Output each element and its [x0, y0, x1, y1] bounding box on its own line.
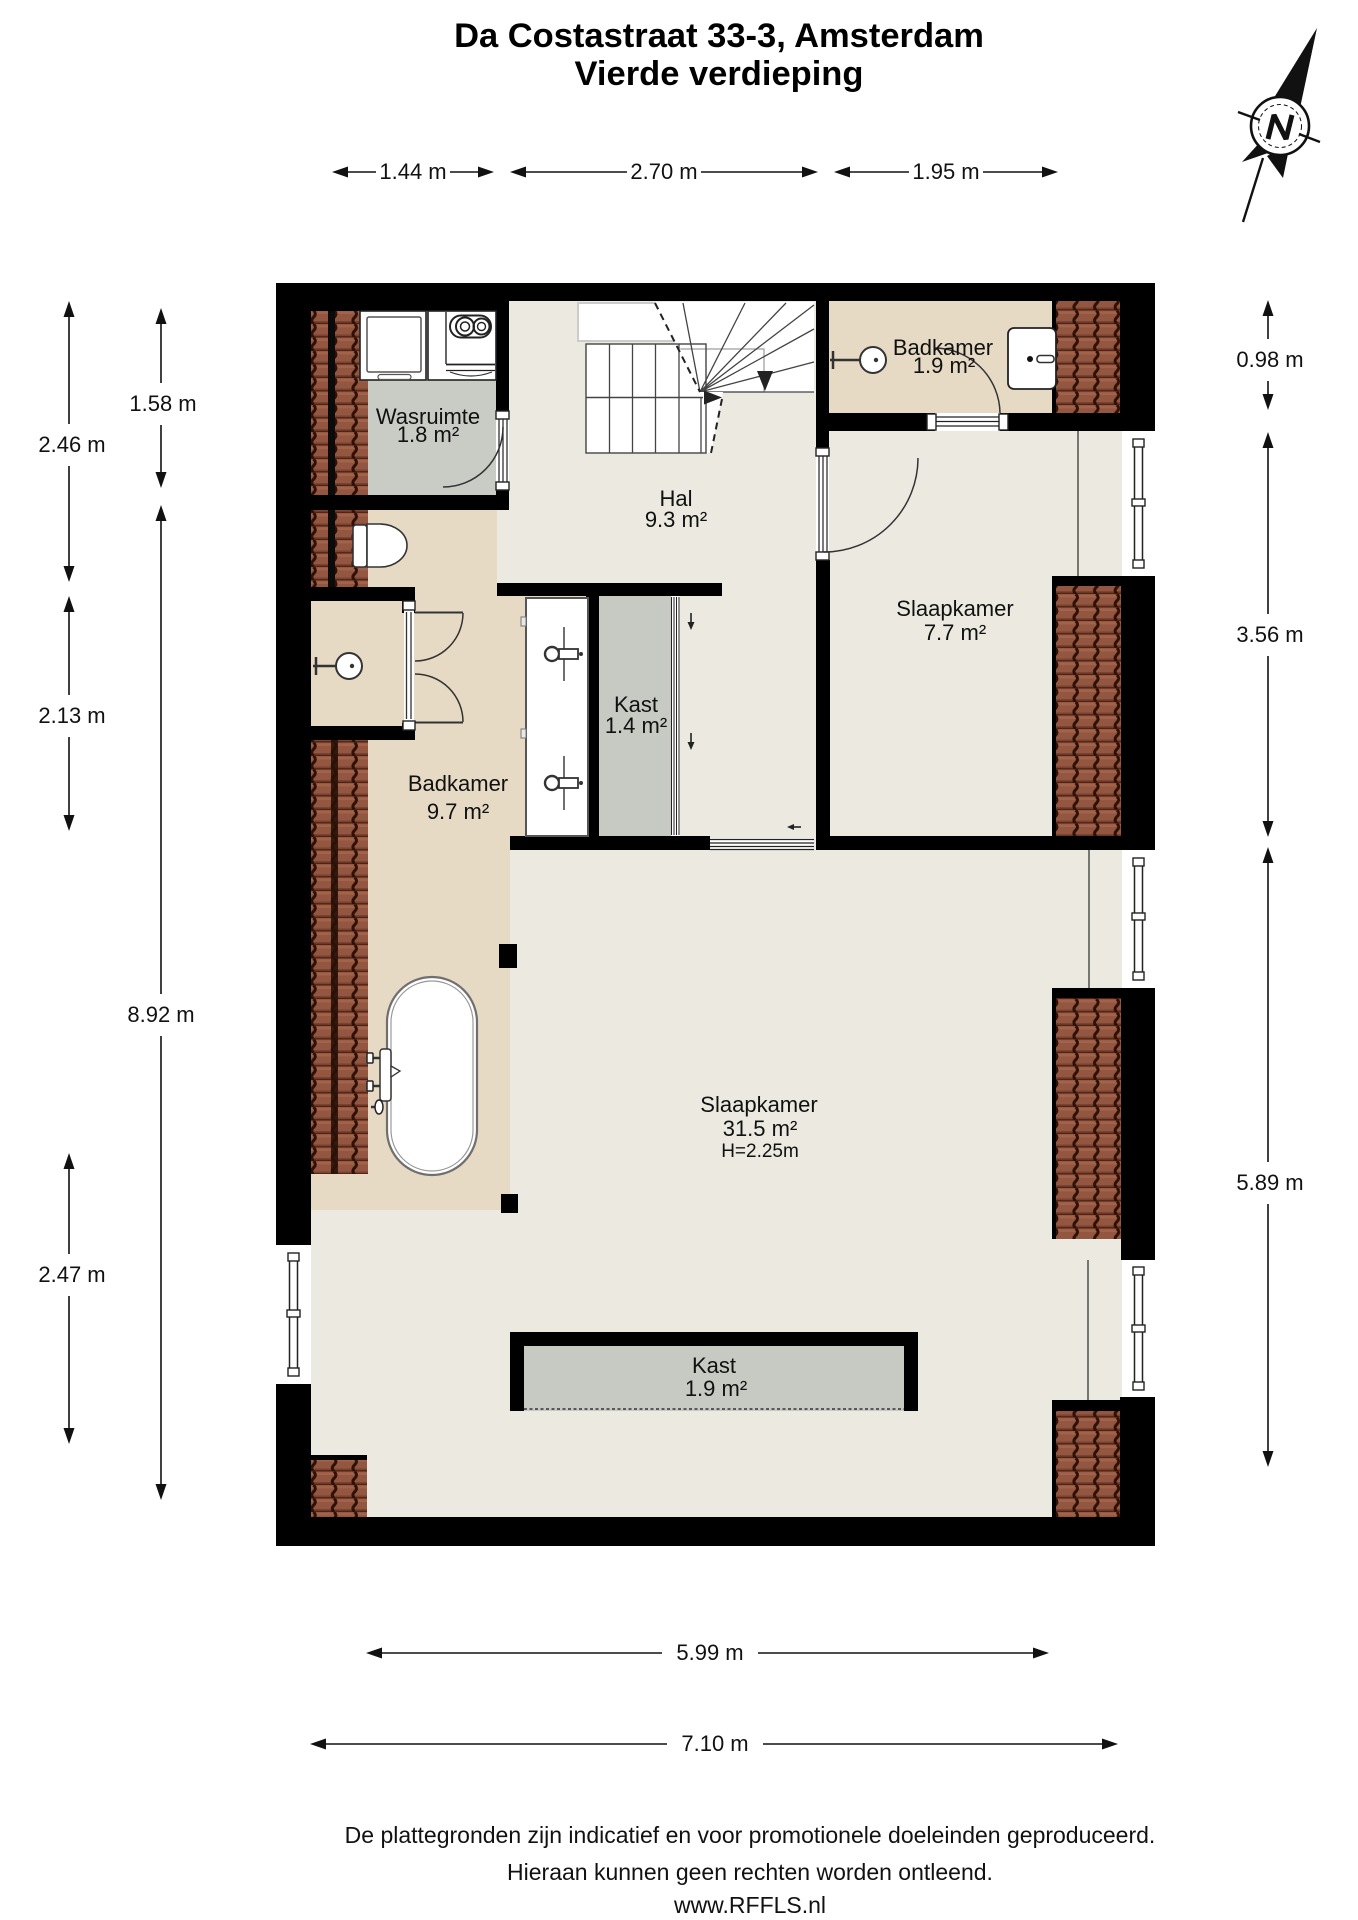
svg-text:9.7 m²: 9.7 m²	[427, 799, 489, 824]
svg-text:7.10 m: 7.10 m	[681, 1731, 748, 1756]
svg-text:2.70 m: 2.70 m	[630, 159, 697, 184]
svg-text:1.4 m²: 1.4 m²	[605, 713, 667, 738]
svg-text:8.92 m: 8.92 m	[127, 1002, 194, 1027]
svg-text:Slaapkamer: Slaapkamer	[896, 596, 1013, 621]
svg-text:Da Costastraat 33-3, Amsterdam: Da Costastraat 33-3, Amsterdam	[454, 17, 984, 55]
svg-text:31.5 m²: 31.5 m²	[723, 1116, 798, 1141]
svg-text:1.9 m²: 1.9 m²	[685, 1376, 747, 1401]
svg-text:Badkamer: Badkamer	[408, 771, 508, 796]
svg-text:0.98 m: 0.98 m	[1236, 347, 1303, 372]
svg-text:Kast: Kast	[692, 1353, 736, 1378]
svg-text:De plattegronden zijn indicati: De plattegronden zijn indicatief en voor…	[345, 1822, 1156, 1848]
svg-text:2.13 m: 2.13 m	[38, 703, 105, 728]
svg-text:2.47 m: 2.47 m	[38, 1262, 105, 1287]
svg-text:1.9 m²: 1.9 m²	[913, 353, 975, 378]
svg-text:5.99 m: 5.99 m	[676, 1640, 743, 1665]
svg-text:1.58 m: 1.58 m	[129, 391, 196, 416]
svg-text:2.46 m: 2.46 m	[38, 432, 105, 457]
svg-text:H=2.25m: H=2.25m	[721, 1141, 799, 1162]
svg-text:3.56 m: 3.56 m	[1236, 622, 1303, 647]
svg-text:9.3 m²: 9.3 m²	[645, 507, 707, 532]
svg-text:Hieraan kunnen geen rechten wo: Hieraan kunnen geen rechten worden ontle…	[507, 1859, 993, 1885]
svg-text:1.8 m²: 1.8 m²	[397, 422, 459, 447]
svg-text:Vierde verdieping: Vierde verdieping	[575, 55, 864, 93]
svg-text:www.RFFLS.nl: www.RFFLS.nl	[673, 1892, 826, 1918]
svg-text:1.95 m: 1.95 m	[912, 159, 979, 184]
svg-text:5.89 m: 5.89 m	[1236, 1170, 1303, 1195]
svg-text:1.44 m: 1.44 m	[379, 159, 446, 184]
svg-text:Slaapkamer: Slaapkamer	[700, 1092, 817, 1117]
svg-text:7.7 m²: 7.7 m²	[924, 620, 986, 645]
